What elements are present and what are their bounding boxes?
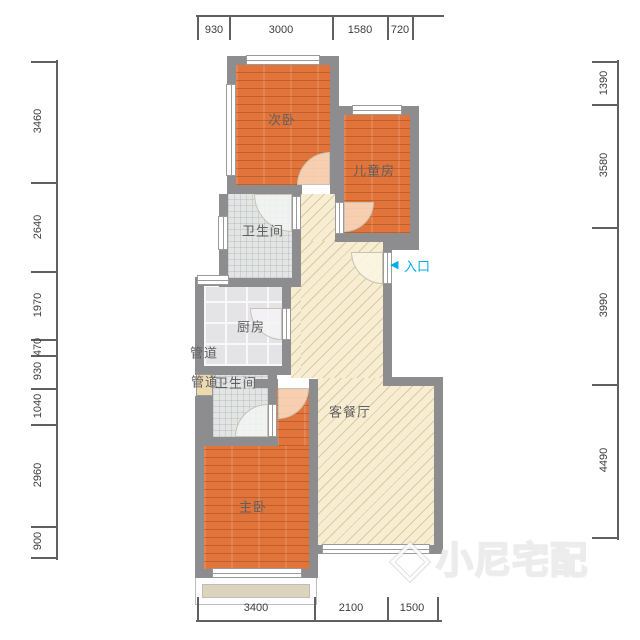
dim-left-2: 1970 [32,293,44,317]
dim-left-1: 2640 [32,215,44,239]
balcony [196,578,316,604]
watermark-text: 小尼宅配 [436,530,588,584]
wall [335,106,344,204]
dim-bottom-1: 2100 [339,602,363,614]
wall [309,379,318,578]
dim-tick [592,537,618,539]
door-leaf [335,202,344,234]
dim-right-1: 3580 [598,153,610,177]
dim-line-right [617,60,619,540]
dim-tick [592,384,618,386]
dim-top-1: 3000 [269,24,293,36]
dim-tick [197,597,199,622]
dim-left-7: 900 [32,532,44,550]
wall [410,106,419,250]
window [197,275,229,285]
dim-tick [31,388,57,390]
duct-label-1: 管道 [190,343,218,362]
dim-tick [437,597,439,622]
wall [255,379,278,388]
door-leaf [268,404,277,437]
secondary-bedroom-label: 次卧 [268,110,296,129]
dim-tick [592,227,618,229]
dim-right-2: 3990 [598,293,610,317]
dim-tick [592,61,618,63]
dim-bottom-0: 3400 [244,602,268,614]
window [352,105,402,115]
door-leaf [282,308,291,340]
dim-tick [229,15,231,40]
kitchen-label: 厨房 [237,317,265,336]
dim-tick [31,61,57,63]
dim-tick [412,15,414,40]
wall [204,437,278,446]
living-floor-strip [291,287,301,378]
wall [434,377,443,554]
dim-left-0: 3460 [32,109,44,133]
window [226,84,236,176]
dim-line-top [196,15,444,17]
dim-tick [387,15,389,40]
dim-tick [31,526,57,528]
bathroom-upper-label: 卫生间 [242,221,284,240]
living-floor-corridor [301,194,335,241]
window [218,216,228,250]
dim-tick [314,597,316,622]
floor-plan: 次卧 儿童房 卫生间 厨房 管道 管道 卫生间 客餐厅 主卧 ◀ 入口 930 … [0,0,640,640]
dim-tick [592,104,618,106]
dim-tick [31,271,57,273]
master-bedroom-label: 主卧 [239,497,267,516]
dim-top-3: 720 [391,24,409,36]
dim-tick [31,182,57,184]
bathroom-lower-label: 卫生间 [215,373,257,392]
dim-line-left [56,60,58,560]
dim-tick [387,597,389,622]
dim-tick [197,15,199,40]
entrance-label: 入口 [404,256,430,275]
dim-top-0: 930 [205,24,223,36]
window [246,55,320,65]
dim-left-5: 1040 [32,394,44,418]
entrance-arrow-icon: ◀ [390,258,398,271]
dim-left-3: 470 [32,338,44,356]
window [322,544,430,554]
door-leaf [292,196,301,230]
living-dining-label: 客餐厅 [329,402,371,421]
dim-left-6: 2960 [32,463,44,487]
window [212,568,302,578]
wall [383,241,392,252]
dim-tick [31,557,57,559]
children-room-label: 儿童房 [353,161,395,180]
dim-top-2: 1580 [348,24,372,36]
dim-tick [332,15,334,40]
dim-right-3: 4490 [598,448,610,472]
wall [227,185,302,194]
wall [195,396,204,578]
dim-right-0: 1390 [598,71,610,95]
wall [383,284,392,386]
dim-tick [31,424,57,426]
dim-bottom-2: 1500 [400,602,424,614]
dim-left-4: 930 [32,362,44,380]
dim-line-bottom [196,620,442,622]
